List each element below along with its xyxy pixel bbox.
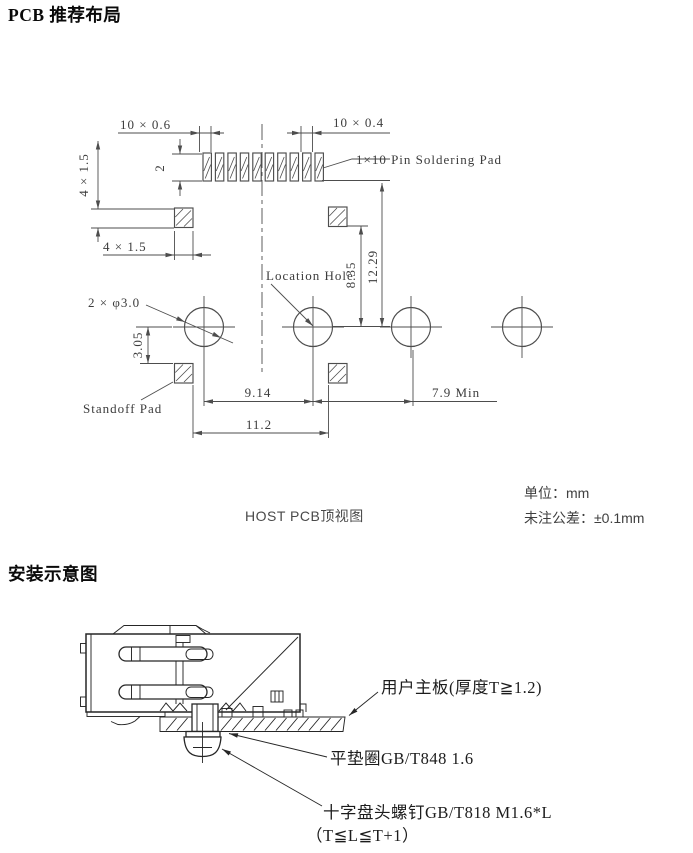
flat-washer (186, 732, 220, 738)
screw-label-line2: （T≦L≦T+1） (306, 826, 419, 845)
dim-standoff-horizontal: 4 × 1.5 (103, 231, 211, 260)
screw-label-line1: 十字盘头螺钉GB/T818 M1.6*L (323, 803, 552, 822)
screw-assembly (184, 704, 221, 763)
mainboard-leader: 用户主板(厚度T≧1.2) (349, 678, 542, 716)
dim-12-29-text: 12.29 (365, 250, 380, 284)
dim-pad-height-text: 2 (152, 164, 167, 172)
pcb-top-view-drawing: 10 × 0.6 10 × 0.4 1×10 Pin Soldering Pad… (0, 108, 693, 460)
dim-7-9-min: 7.9 Min (313, 350, 497, 406)
location-hole-label: Location Hole (266, 268, 354, 283)
dim-pad-gap-text: 10 × 0.4 (333, 115, 384, 130)
dim-9-14: 9.14 (204, 385, 313, 404)
screw-boss (192, 704, 218, 732)
tolerance-note: 未注公差：±0.1mm (524, 508, 644, 528)
hole-spec-text: 2 × φ3.0 (88, 295, 140, 310)
dim-pad-width-text: 10 × 0.6 (120, 117, 171, 132)
mounting-drawing: 用户主板(厚度T≧1.2) 平垫圈GB/T848 1.6 十字盘头螺钉GB/T8… (0, 600, 693, 853)
standoff-pad-top-right (329, 207, 348, 227)
pin-pad-leader: 1×10 Pin Soldering Pad (323, 152, 502, 168)
washer-label: 平垫圈GB/T848 1.6 (330, 749, 474, 768)
standoff-pad-label: Standoff Pad (83, 401, 162, 416)
dim-9-14-text: 9.14 (245, 385, 272, 400)
dim-pad-width: 10 × 0.6 (118, 117, 224, 152)
dim-standoff-vertical: 4 × 1.5 (76, 141, 174, 242)
dim-standoff-v-text: 4 × 1.5 (76, 153, 91, 197)
solder-pad-row (203, 153, 323, 181)
dim-12-29: 12.29 (322, 181, 390, 327)
section-title-pcb-layout: PCB 推荐布局 (8, 2, 121, 27)
dim-standoff-h-text: 4 × 1.5 (103, 239, 147, 254)
standoff-pad-bottom-left (175, 364, 194, 384)
dim-11-2-text: 11.2 (246, 417, 272, 432)
section-title-mounting: 安装示意图 (8, 561, 98, 586)
unit-note: 单位：mm (524, 483, 589, 503)
mainboard-label: 用户主板(厚度T≧1.2) (381, 678, 542, 697)
pcb-drawing-caption: HOST PCB顶视图 (245, 506, 364, 526)
dim-7-9-text: 7.9 Min (432, 385, 480, 400)
dim-3-05: 3.05 (130, 327, 173, 364)
location-hole-leader: Location Hole (266, 268, 354, 326)
standoff-pad-bottom-right (329, 364, 348, 384)
location-hole-circles (173, 296, 553, 406)
dim-pad-gap: 10 × 0.4 (287, 115, 390, 152)
pin-pad-label: 1×10 Pin Soldering Pad (356, 152, 502, 167)
washer-leader: 平垫圈GB/T848 1.6 (229, 733, 474, 768)
connector-pins (119, 647, 213, 699)
dim-3-05-text: 3.05 (130, 332, 145, 359)
hole-spec-leader: 2 × φ3.0 (88, 295, 233, 343)
standoff-pad-top-left (175, 208, 194, 228)
dim-pad-height: 2 (152, 139, 202, 196)
datasheet-page: PCB 推荐布局 (0, 0, 693, 853)
standoff-pad-leader: Standoff Pad (83, 382, 173, 416)
pcb-board-cross-section (160, 717, 345, 732)
